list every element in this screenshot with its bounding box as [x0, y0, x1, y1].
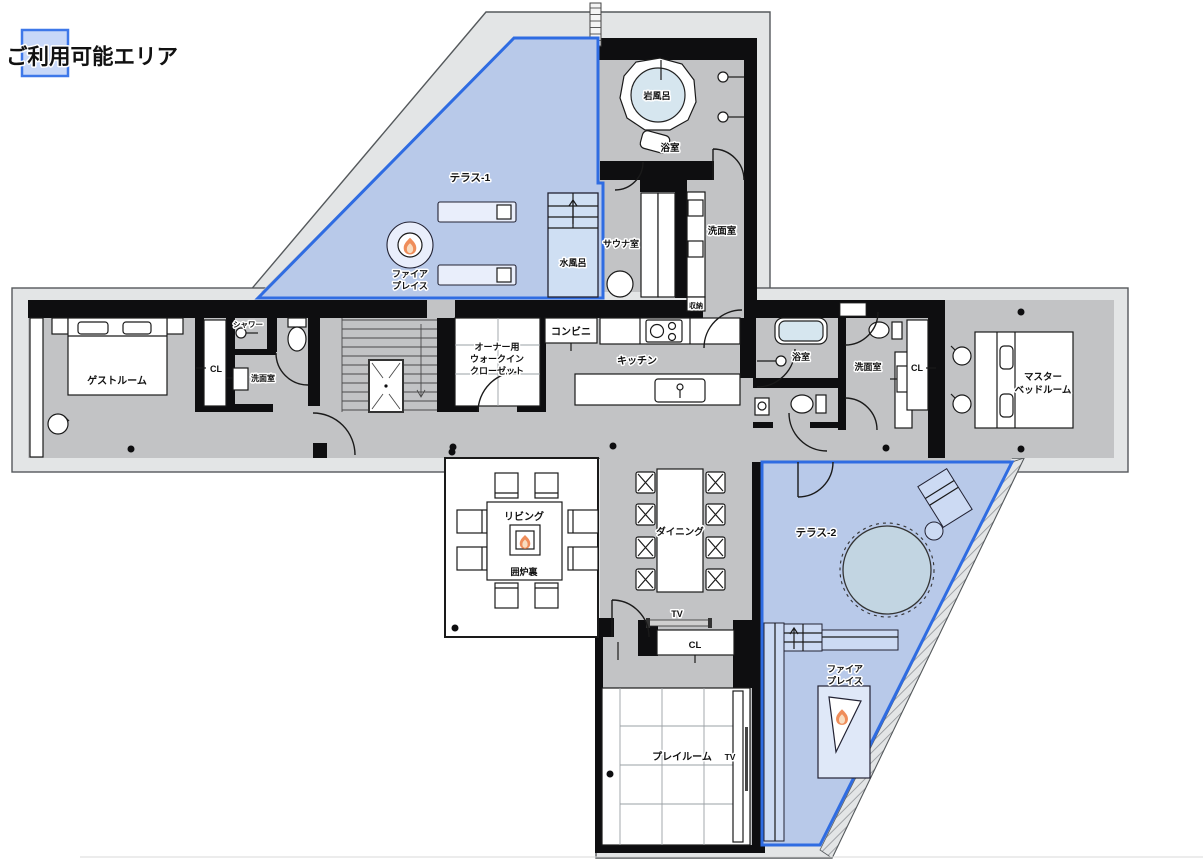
sauna-bench [641, 193, 658, 297]
label-cold-bath: 水風呂 [559, 257, 586, 268]
washroom-top [687, 192, 705, 311]
svg-text:ウォークイン: ウォークイン [470, 354, 524, 364]
label-cl-right: CL [911, 363, 923, 373]
chair [953, 395, 971, 413]
label-washroom-right: 洗面室 [854, 361, 881, 372]
label-owner-wic: オーナー用 [474, 342, 519, 352]
svg-text:クローゼット: クローゼット [470, 365, 524, 376]
nightstand [52, 318, 68, 334]
tree [843, 526, 931, 614]
label-rock-bath: 岩風呂 [642, 90, 670, 101]
label-sauna: サウナ室 [603, 238, 639, 249]
small-sink [755, 398, 769, 415]
deck-strip [764, 623, 784, 841]
terrace-2-area [762, 462, 1012, 845]
toilet-tank [892, 322, 902, 339]
label-dining: ダイニング [656, 526, 704, 538]
chair [535, 473, 558, 498]
legend: ご利用可能エリア [6, 30, 178, 76]
pillow [78, 322, 108, 334]
pillow [123, 322, 151, 334]
chair [953, 347, 971, 365]
terrace-stairs [784, 624, 822, 651]
label-playroom: プレイルーム [652, 750, 712, 763]
toilet-tank [288, 318, 306, 327]
sink [688, 241, 703, 257]
chair [495, 473, 518, 498]
floor-plan-page: ご利用可能エリア テラス-1 ファイア プレイス 岩風呂 浴室 サウナ室 水風呂… [0, 0, 1203, 862]
sink [688, 200, 703, 216]
label-tv-top: TV [671, 609, 683, 619]
svg-text:ベッドルーム: ベッドルーム [1015, 385, 1072, 396]
toilet [288, 327, 306, 351]
shower-head-icon [776, 356, 786, 366]
svg-text:プレイス: プレイス [827, 675, 863, 686]
window [840, 303, 866, 316]
pillow [1000, 346, 1013, 369]
side-table [925, 522, 943, 540]
toilet-tank [816, 395, 826, 413]
sauna-stove [607, 271, 633, 297]
label-washroom-left: 洗面室 [251, 373, 275, 383]
label-fireplace-1: ファイア [392, 269, 428, 279]
toilet [791, 395, 813, 413]
label-cl-bottom: CL [689, 640, 702, 651]
tv-screen [745, 727, 748, 791]
svg-text:プレイス: プレイス [392, 280, 428, 291]
nightstand [167, 318, 183, 334]
tv-board [733, 691, 743, 842]
label-master-bedroom: マスター [1024, 371, 1062, 383]
label-irori: 囲炉裏 [510, 566, 538, 577]
label-kitchen: キッチン [617, 355, 657, 367]
terrace-bench [822, 630, 898, 650]
floor-plan-svg: ご利用可能エリア テラス-1 ファイア プレイス 岩風呂 浴室 サウナ室 水風呂… [0, 0, 1203, 862]
label-bath-right: 浴室 [792, 351, 810, 362]
label-guest-room: ゲストルーム [87, 374, 147, 387]
legend-label: ご利用可能エリア [6, 44, 178, 69]
window-band [30, 318, 43, 457]
label-cl-left: CL [210, 364, 222, 374]
label-tv-playroom: TV [725, 752, 736, 762]
cold-bath [548, 193, 598, 297]
label-terrace-2: テラス-2 [796, 527, 837, 539]
pillow [1000, 394, 1013, 417]
bathtub [779, 321, 823, 341]
fireplace-2 [818, 686, 870, 778]
label-washroom-top: 洗面室 [708, 225, 737, 237]
label-storage: 収納 [689, 301, 703, 310]
label-fireplace-2: ファイア [827, 664, 863, 674]
label-shower: シャワー [233, 320, 263, 329]
label-terrace-1: テラス-1 [450, 172, 491, 184]
sink [233, 368, 248, 390]
living-room [445, 458, 598, 637]
sauna-bench [658, 193, 675, 297]
chair [535, 583, 558, 608]
terrace-2-available-area [762, 462, 1012, 845]
stove [646, 320, 682, 342]
shower-head-icon [236, 328, 246, 338]
label-bath-top: 浴室 [660, 142, 680, 154]
chair [495, 583, 518, 608]
label-conbini: コンビニ [551, 325, 591, 338]
label-living: リビング [504, 510, 544, 523]
